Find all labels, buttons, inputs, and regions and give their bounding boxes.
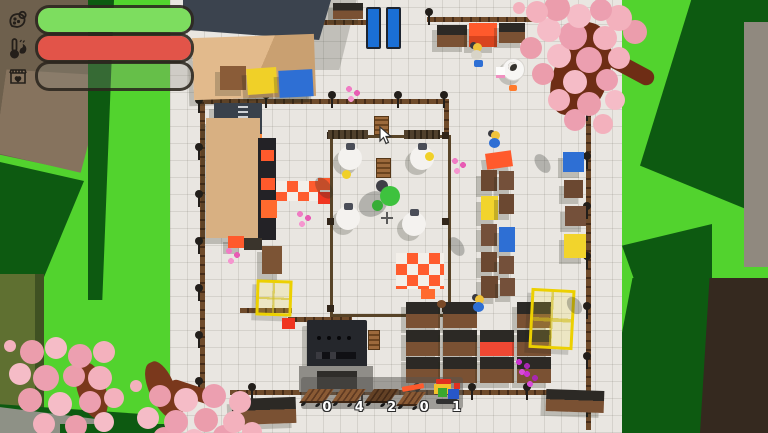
shelf-box[interactable] xyxy=(481,224,497,246)
orange-crate[interactable] xyxy=(261,150,274,161)
workbench-machine[interactable] xyxy=(338,146,362,170)
red-block[interactable] xyxy=(282,318,295,329)
pause-icon xyxy=(366,7,381,49)
item-count: 0 xyxy=(420,400,429,415)
mouse-cursor xyxy=(379,126,393,146)
machine-panel xyxy=(316,352,356,359)
shelf-box[interactable] xyxy=(499,194,514,214)
shelf-box[interactable] xyxy=(565,206,586,226)
fence-post xyxy=(327,218,334,225)
game-viewport: 0 4 2 0 1 xyxy=(0,0,768,433)
lamp-post xyxy=(583,352,591,369)
yellow-cage-station[interactable] xyxy=(255,279,292,316)
workbench-machine[interactable] xyxy=(336,206,360,230)
workbench-machine[interactable] xyxy=(402,212,426,236)
top-bench[interactable] xyxy=(333,3,363,19)
pink-flowers xyxy=(295,210,313,228)
yellow-part[interactable] xyxy=(425,152,434,161)
yellow-part[interactable] xyxy=(342,170,351,179)
lamp-post xyxy=(583,302,591,319)
pink-flowers xyxy=(344,85,362,103)
seed-sack-icon xyxy=(6,8,30,32)
pink-flowers xyxy=(450,157,468,175)
orange-crate[interactable] xyxy=(261,178,275,190)
shelf-box[interactable] xyxy=(499,256,514,274)
lamp-post xyxy=(394,91,402,108)
machine-knob xyxy=(317,336,321,340)
status-hud xyxy=(6,6,194,90)
tree-blossoms xyxy=(4,340,16,352)
lamp-post xyxy=(468,383,476,400)
fence-post xyxy=(442,132,449,139)
shelf-box-blue[interactable] xyxy=(563,152,584,172)
pause-button[interactable] xyxy=(366,0,411,50)
lamp-post xyxy=(195,143,203,160)
item-count: 2 xyxy=(387,400,396,415)
small-item xyxy=(437,300,446,308)
lamp-post xyxy=(425,8,433,25)
tree-blossoms xyxy=(130,380,142,392)
hotbar-slot-toy-train[interactable]: 1 xyxy=(431,377,463,409)
seat-bench-red[interactable] xyxy=(480,330,514,356)
cherry-tree-top-right xyxy=(505,0,655,150)
pause-icon xyxy=(386,7,401,49)
brown-crate[interactable] xyxy=(262,246,282,274)
item-count: 4 xyxy=(355,400,364,415)
resources-bar xyxy=(35,5,194,35)
shelf-box[interactable] xyxy=(500,278,515,296)
blue-item[interactable] xyxy=(474,60,483,67)
lamp-post xyxy=(195,284,203,301)
shop-heart-icon xyxy=(6,64,30,88)
temperature-bar xyxy=(35,33,194,63)
gate-rail xyxy=(404,130,440,139)
shelf-box[interactable] xyxy=(564,180,583,198)
blue-bin[interactable] xyxy=(278,69,313,98)
hotbar-slot-pallet-1[interactable]: 0 xyxy=(301,377,333,409)
seat-bench[interactable] xyxy=(480,357,514,383)
npc-customer[interactable] xyxy=(472,294,486,312)
seat-bench[interactable] xyxy=(443,330,477,356)
fence-post xyxy=(442,218,449,225)
tree-trunk xyxy=(69,359,115,423)
lamp-post xyxy=(440,91,448,108)
dark-crate[interactable] xyxy=(244,238,262,250)
pallet-stack[interactable] xyxy=(376,158,391,178)
white-box[interactable] xyxy=(496,67,505,78)
building-bottom-right xyxy=(700,278,768,433)
status-row-resources xyxy=(6,6,194,34)
lamp-post xyxy=(195,190,203,207)
cherry-tree-bottom-center xyxy=(130,352,270,433)
pink-flowers xyxy=(224,247,242,265)
lamp-post xyxy=(195,237,203,254)
hotbar-slot-plank-pallet[interactable]: 0 xyxy=(398,377,430,409)
orange-crate[interactable] xyxy=(261,200,277,218)
pallet-stack[interactable] xyxy=(368,330,380,350)
tall-building xyxy=(206,118,260,238)
npc-customer[interactable] xyxy=(470,42,484,60)
shop-appeal-bar xyxy=(35,61,194,91)
purple-flowers xyxy=(522,370,540,388)
lamp-post xyxy=(583,152,591,169)
hotbar-slot-pallet-2[interactable]: 4 xyxy=(333,377,365,409)
brown-bin[interactable] xyxy=(220,66,246,90)
shelf-box[interactable] xyxy=(499,171,514,190)
player-character[interactable] xyxy=(380,186,400,206)
lamp-post xyxy=(195,331,203,348)
seat-bench[interactable] xyxy=(406,330,440,356)
status-row-temperature xyxy=(6,34,194,62)
status-row-shop-appeal xyxy=(6,62,194,90)
bottom-desk[interactable] xyxy=(546,389,605,413)
item-hotbar: 0 4 2 0 1 xyxy=(301,377,463,409)
wall-right xyxy=(744,22,768,267)
seat-bench[interactable] xyxy=(406,302,440,328)
player-arm xyxy=(372,200,383,211)
tree-trunk xyxy=(544,17,622,124)
shelf-box-yellow[interactable] xyxy=(481,196,498,220)
resources-bar-fill xyxy=(38,8,191,32)
lamp-post xyxy=(328,91,336,108)
cherry-tree-bottom-left xyxy=(0,330,130,433)
thermometer-fire-icon xyxy=(6,36,30,60)
shelf-box-blue[interactable] xyxy=(499,227,515,252)
gate-rail xyxy=(328,130,368,139)
hotbar-slot-pallet-dark[interactable]: 2 xyxy=(366,377,398,409)
shelf-box-yellow[interactable] xyxy=(564,234,586,258)
crosshair xyxy=(381,212,393,224)
shelf-box[interactable] xyxy=(481,252,497,272)
npc-customer[interactable] xyxy=(488,130,502,148)
orange-plank-icon xyxy=(402,383,425,392)
tree-blossoms xyxy=(513,2,525,14)
fence-post xyxy=(327,305,334,312)
shelf-box[interactable] xyxy=(481,170,497,191)
item-count: 1 xyxy=(452,400,461,415)
counter-desk[interactable] xyxy=(437,25,467,47)
yellow-bin[interactable] xyxy=(246,67,278,95)
temperature-bar-fill xyxy=(38,36,191,60)
